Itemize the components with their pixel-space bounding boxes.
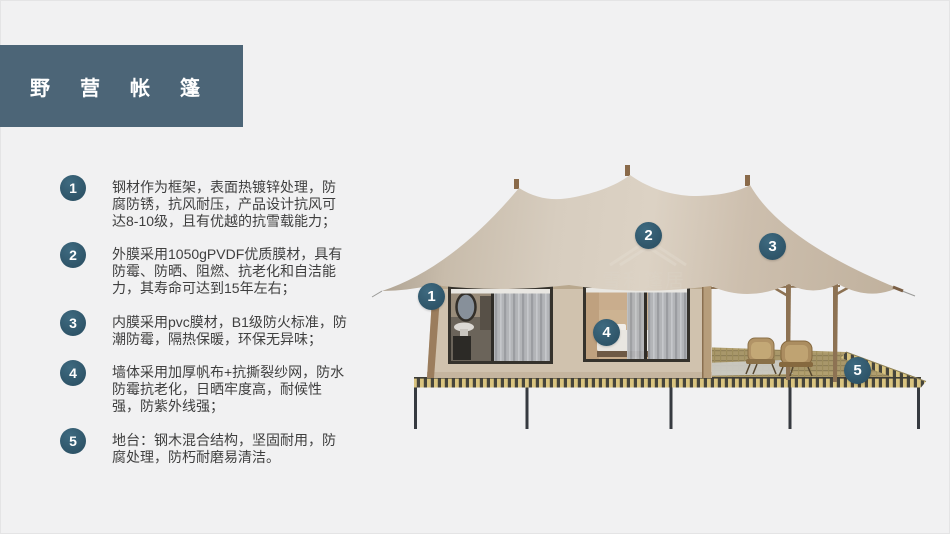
cabin [427,283,712,378]
cabinet [453,336,471,360]
guy-rope-left [372,291,382,297]
image-marker-3: 3 [759,233,786,260]
image-marker-2: 2 [635,222,662,249]
slide: 野营帐篷 1 钢材作为框架，表面热镀锌处理，防腐防锈，抗风耐压，产品设计抗风可达… [0,0,950,534]
image-marker-4: 4 [593,319,620,346]
image-marker-1: 1 [418,283,445,310]
svg-text:雪利篷居: 雪利篷居 [602,270,686,292]
image-marker-5: 5 [844,357,871,384]
window-bathroom [448,286,553,364]
curtains-b-mid [627,288,645,359]
tent-illustration: 雪利篷居 1 2 3 4 5 [0,0,950,534]
curtains-b [648,288,687,359]
tent-drawing: 雪利篷居 [0,0,950,534]
deck-legs [414,387,920,429]
deck-fascia [414,378,921,388]
curtains-a [494,289,550,361]
mirror [457,294,476,321]
